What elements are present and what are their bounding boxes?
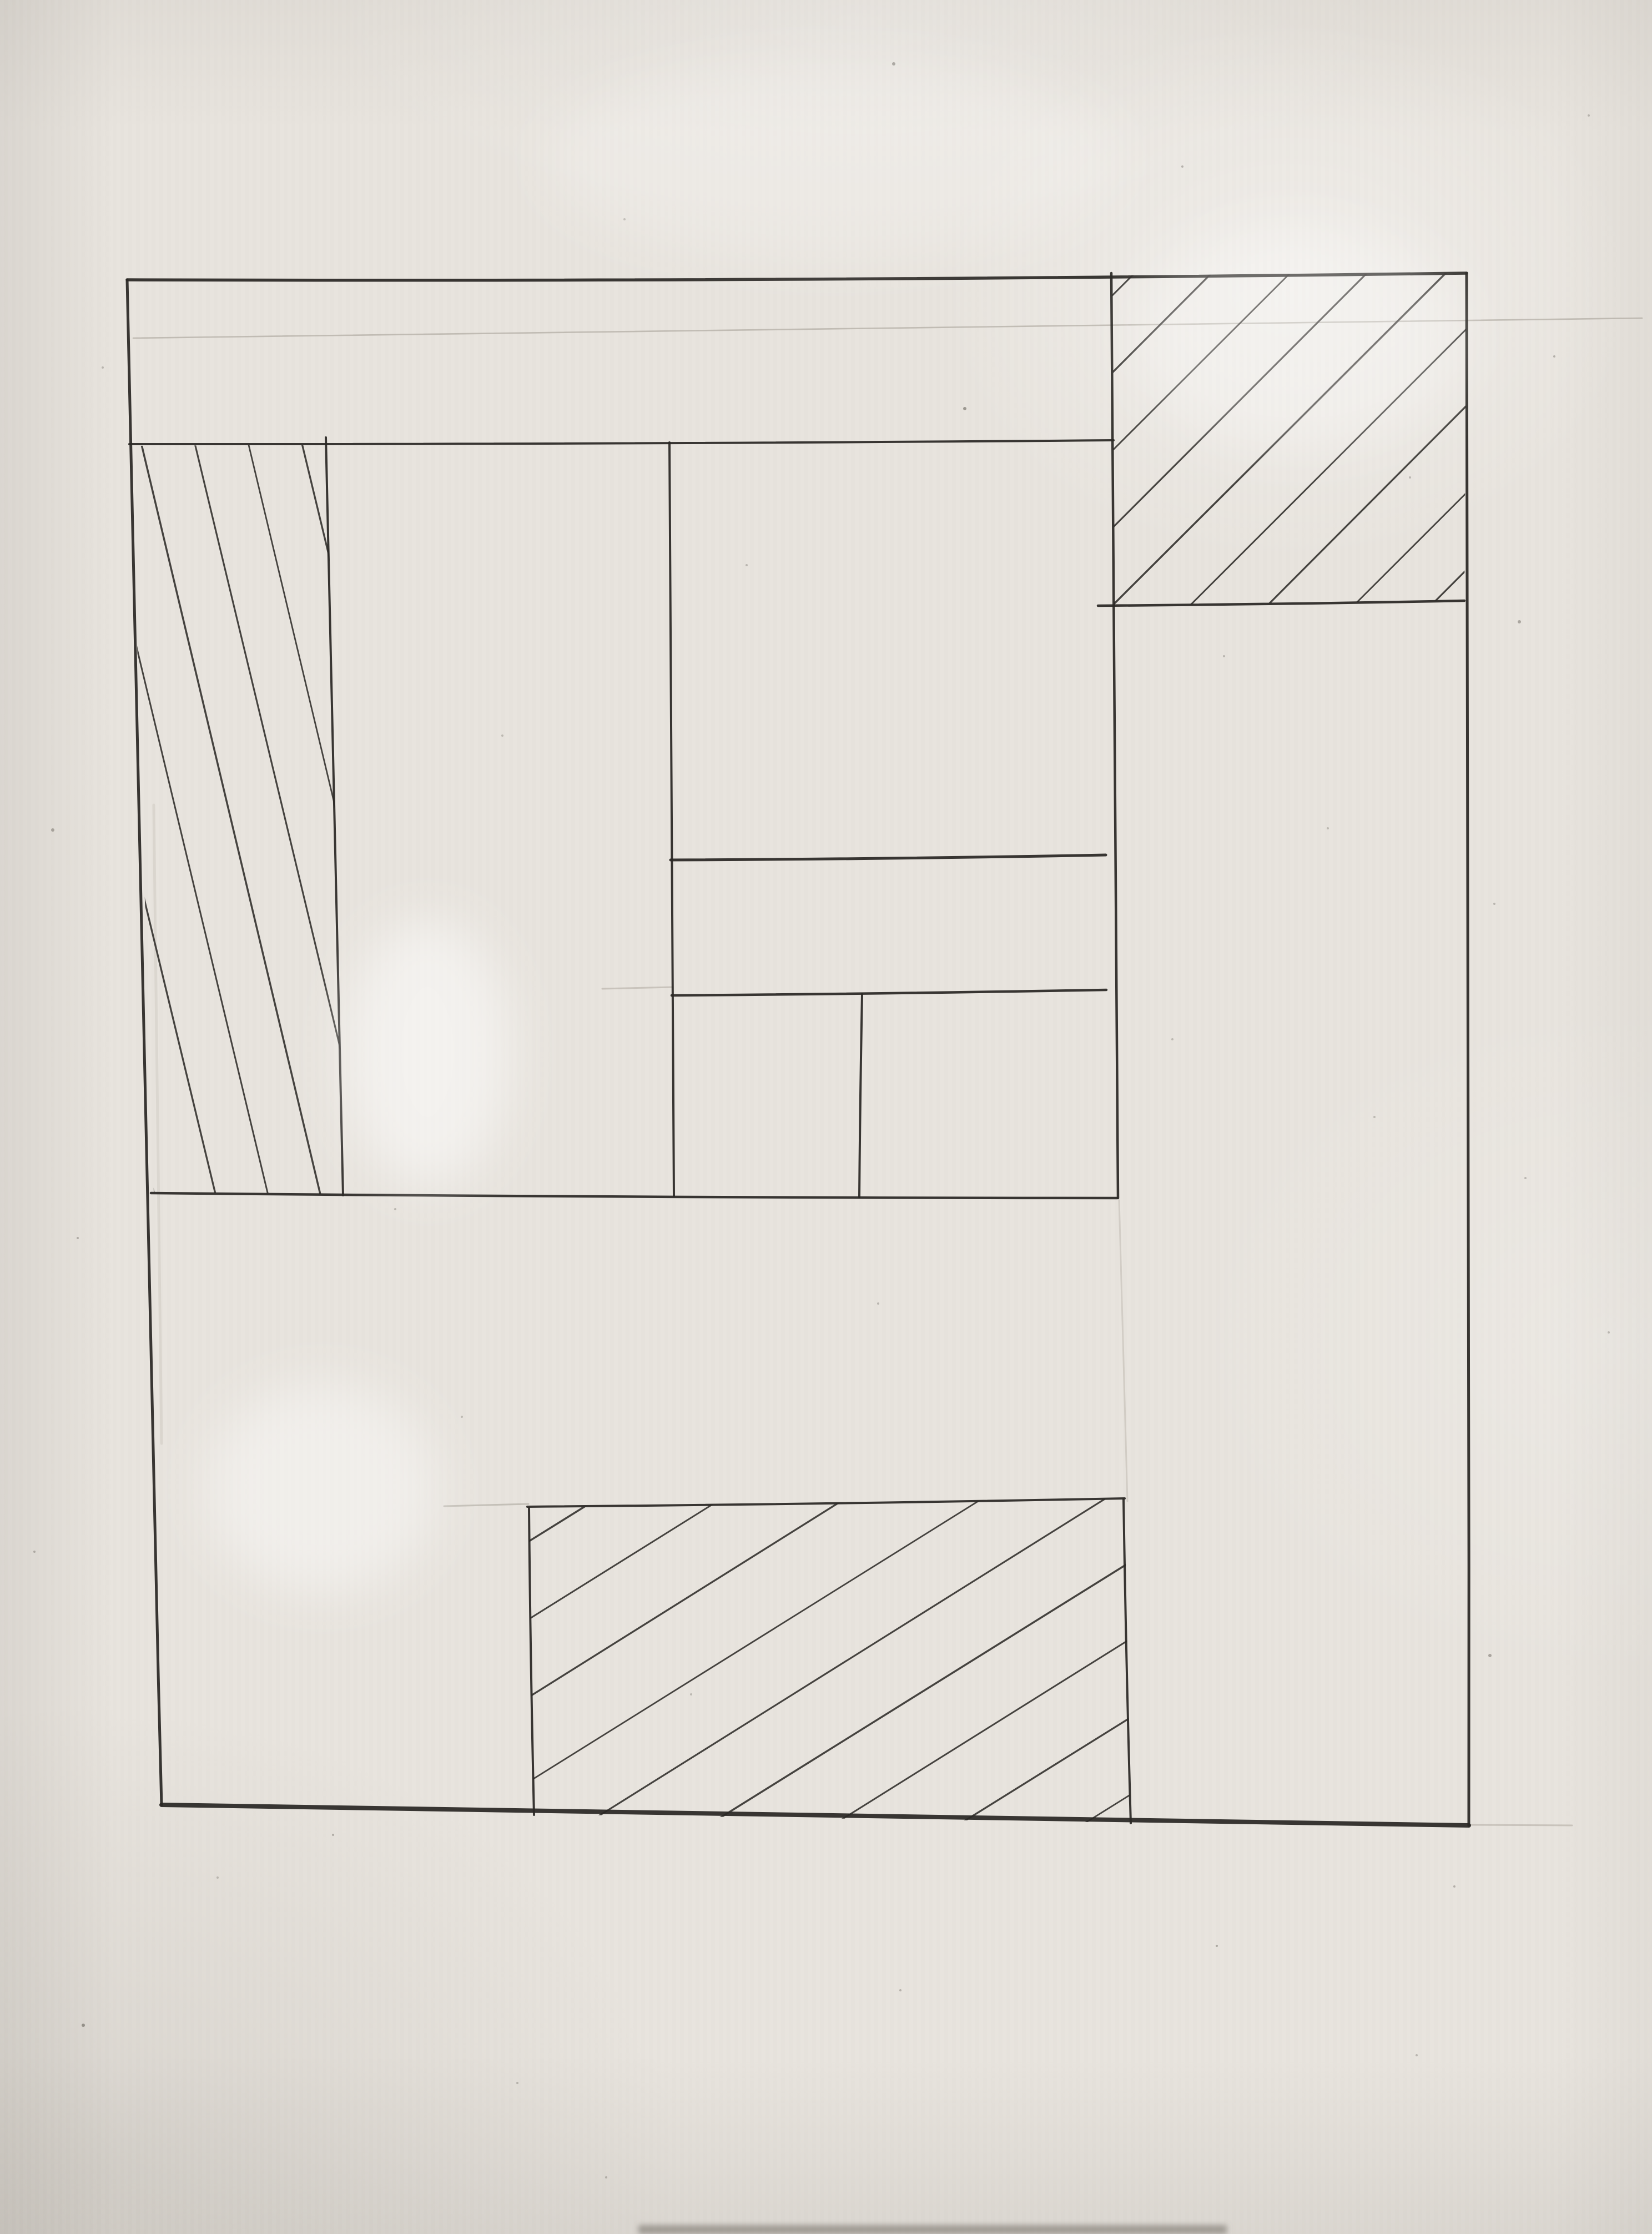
paper-speck (461, 1416, 463, 1418)
paper-speck (216, 1876, 219, 1879)
paper-speck (605, 2176, 607, 2178)
paper-speck (1553, 355, 1555, 358)
line-drawing (0, 0, 1652, 2234)
pencil-shadow-left-edge (154, 805, 162, 1443)
ink-top-band-bottom (129, 440, 1114, 444)
ink-bottom-rect-right (1124, 1500, 1131, 1823)
hatch-line (0, 1053, 1652, 2234)
photographed-paper-sheet (0, 0, 1652, 2234)
bottom-rect-hatch (0, 544, 1652, 2234)
paper-speck (899, 1989, 901, 1991)
ink-right-column-left (1111, 273, 1118, 1198)
paper-speck (1608, 1331, 1610, 1334)
ink-tr-square-bottom (1098, 601, 1464, 606)
ink-outer-bottom-edge (162, 1805, 1469, 1825)
paper-speck (394, 1208, 396, 1210)
ink-bottom-rect-left (529, 1508, 534, 1815)
paper-speck (1409, 476, 1411, 479)
paper-speck (1518, 620, 1521, 623)
hatch-line (0, 544, 1652, 2234)
paper-sheen (1132, 228, 1465, 450)
paper-speck (1588, 114, 1590, 117)
hatch-line (0, 1106, 1652, 2234)
ink-mid-upper-horizontal (671, 855, 1106, 860)
paper-speck (877, 1302, 879, 1305)
paper-speck (1373, 1116, 1376, 1118)
hatch-line (0, 0, 608, 2161)
paper-speck (1488, 1654, 1492, 1657)
hatch-line (0, 0, 398, 2211)
paper-speck (82, 2024, 85, 2027)
paper-speck (77, 1237, 79, 1239)
pencil-guide-right-column (1119, 1200, 1127, 1501)
hatch-line (0, 940, 1652, 2234)
ink-cell-divider (859, 994, 862, 1197)
hatch-line (0, 0, 656, 2149)
paper-speck (51, 828, 54, 832)
paper-speck (1327, 827, 1329, 829)
paper-edge-shadow (638, 2225, 1227, 2234)
pencil-guide-bottom-right (1469, 1825, 1572, 1825)
paper-sheen (544, 61, 1121, 261)
paper-speck (1223, 655, 1225, 657)
pencil-guide-mid-left (602, 987, 673, 989)
paper-sheen (344, 919, 511, 1185)
paper-speck (1216, 1945, 1218, 1947)
ink-outer-right-edge (1467, 273, 1469, 1825)
hatch-line (0, 0, 350, 2222)
paper-speck (516, 2082, 518, 2084)
paper-speck (963, 407, 966, 410)
ink-bottom-rect-top (527, 1498, 1125, 1507)
paper-speck (1171, 1038, 1173, 1040)
ink-left-strip-right (326, 437, 343, 1195)
paper-speck (1453, 1885, 1455, 1888)
paper-speck (1181, 165, 1183, 168)
paper-speck (332, 1834, 334, 1836)
ink-mid-lower-horizontal (672, 990, 1106, 995)
paper-sheen (205, 1382, 439, 1593)
paper-speck (102, 366, 104, 369)
hatch-line (0, 999, 1652, 2234)
paper-speck (1493, 903, 1495, 905)
ink-mid-left-vertical (669, 442, 674, 1196)
paper-speck (33, 1551, 36, 1553)
paper-speck (501, 734, 503, 737)
paper-speck (690, 1693, 692, 1695)
ink-long-horizontal (151, 1193, 1117, 1198)
pencil-guide-bottomrect (444, 1504, 528, 1506)
paper-speck (1416, 2054, 1418, 2056)
paper-speck (746, 564, 748, 566)
paper-speck (1524, 1177, 1527, 1179)
